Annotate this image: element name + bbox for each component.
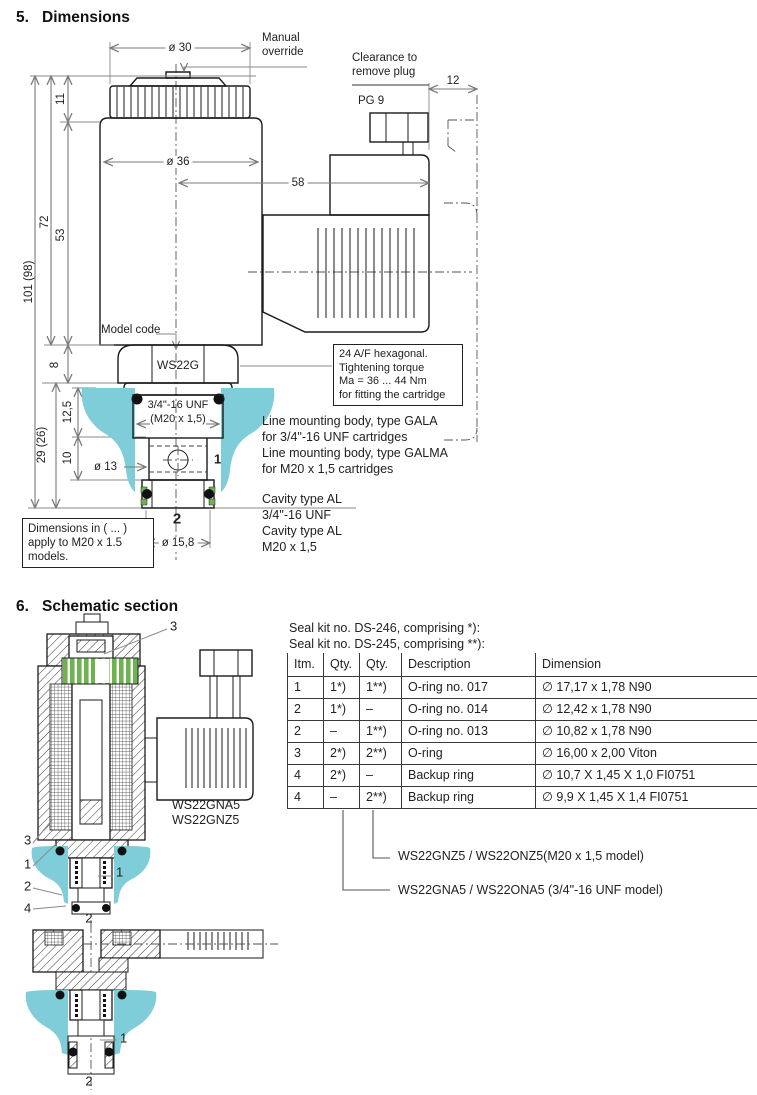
dim-12: 12 (444, 75, 463, 87)
dims-note-line: Dimensions in ( ... ) (28, 522, 148, 536)
dim-11: 11 (55, 93, 67, 105)
cell: 1*) (324, 677, 360, 699)
model-code-label: Model code (101, 324, 160, 336)
dim-58: 58 (289, 177, 308, 189)
seal-kit-line-1: Seal kit no. DS-246, comprising *): (289, 621, 480, 635)
dims-note-box: Dimensions in ( ... ) apply to M20 x 1.5… (22, 518, 154, 568)
cell: – (324, 787, 360, 809)
cell: – (360, 765, 402, 787)
seal-kit-line-2: Seal kit no. DS-245, comprising **): (289, 637, 485, 651)
section6-title: Schematic section (42, 598, 178, 616)
mount-note-line: for 3/4"-16 UNF cartridges (262, 430, 407, 444)
ws22g-label: WS22G (157, 358, 199, 372)
col-qty1: Qty. (324, 653, 360, 677)
datasheet-page: 5. Dimensions 6. Schematic section ø 30 … (0, 0, 757, 1095)
dim-125: 12,5 (62, 401, 74, 423)
cell: 1*) (324, 699, 360, 721)
dim-53: 53 (55, 229, 67, 242)
port2-label: 2 (173, 511, 181, 528)
callout-1: 1 (24, 857, 31, 872)
port1-label: 1 (214, 452, 221, 467)
cell: ∅ 12,42 x 1,78 N90 (536, 699, 757, 721)
callout-1-mid: 1 (116, 865, 123, 880)
dimension-drawing (28, 42, 477, 560)
hex-note-line: for fitting the cartridge (339, 389, 457, 403)
pg9-label: PG 9 (358, 95, 384, 107)
callout-2-bottom: 2 (85, 911, 92, 926)
cell: O-ring no. 013 (402, 721, 536, 743)
dim-dia30: ø 30 (165, 42, 194, 54)
cell: ∅ 9,9 X 1,45 X 1,4 FI0751 (536, 787, 757, 809)
hex-note-line: Ma = 36 ... 44 Nm (339, 375, 457, 389)
dims-note-line: apply to M20 x 1.5 (28, 536, 148, 550)
cavity-note-line: Cavity type AL (262, 524, 342, 538)
callout-2: 2 (24, 879, 31, 894)
mount-note-line: Line mounting body, type GALMA (262, 446, 448, 460)
manual-override-label-2: override (262, 46, 304, 58)
cell: Backup ring (402, 787, 536, 809)
clearance-label-1: Clearance to (352, 52, 417, 64)
cell: 3 (288, 743, 324, 765)
callout-4: 4 (24, 901, 31, 916)
cell: ∅ 16,00 x 2,00 Viton (536, 743, 757, 765)
cell: 2**) (360, 787, 402, 809)
callout-3-top: 3 (170, 619, 177, 634)
section6-number: 6. (16, 598, 29, 616)
cell: – (360, 699, 402, 721)
col-description: Description (402, 653, 536, 677)
dim-dia13: ø 13 (94, 461, 117, 473)
cell: O-ring no. 014 (402, 699, 536, 721)
model-label-1: WS22GNA5 (172, 798, 240, 812)
cell: 4 (288, 787, 324, 809)
cavity-note-line: Cavity type AL (262, 492, 342, 506)
table-leader-lines (343, 810, 390, 890)
schematic-upper (32, 614, 253, 928)
clearance-label-2: remove plug (352, 66, 415, 78)
table-header-row: Itm. Qty. Qty. Description Dimension (288, 653, 757, 677)
section5-number: 5. (16, 9, 29, 27)
cell: 2*) (324, 765, 360, 787)
mount-note-line: for M20 x 1,5 cartridges (262, 462, 393, 476)
cell: 2 (288, 721, 324, 743)
table-row: 42*)–Backup ring∅ 10,7 X 1,45 X 1,0 FI07… (288, 765, 757, 787)
section5-title: Dimensions (42, 9, 130, 27)
table-row: 2–1**)O-ring no. 013∅ 10,82 x 1,78 N90 (288, 721, 757, 743)
dims-note-line: models. (28, 550, 148, 564)
cavity-note-line: 3/4"-16 UNF (262, 508, 331, 522)
table-row: 21*)–O-ring no. 014∅ 12,42 x 1,78 N90 (288, 699, 757, 721)
cell: 2*) (324, 743, 360, 765)
cell: – (324, 721, 360, 743)
table-row: 4–2**)Backup ring∅ 9,9 X 1,45 X 1,4 FI07… (288, 787, 757, 809)
cell: O-ring (402, 743, 536, 765)
manual-override-label-1: Manual (262, 32, 300, 44)
cell: 1 (288, 677, 324, 699)
hex-note-line: 24 A/F hexagonal. (339, 348, 457, 362)
seal-kit-table: Itm. Qty. Qty. Description Dimension 11*… (287, 653, 757, 809)
mount-note-line: Line mounting body, type GALA (262, 414, 438, 428)
cell: 1**) (360, 721, 402, 743)
col-dimension: Dimension (536, 653, 757, 677)
hex-note-box: 24 A/F hexagonal. Tightening torque Ma =… (333, 344, 463, 406)
dim-dia36: ø 36 (163, 156, 192, 168)
model-line-m20: WS22GNZ5 / WS22ONZ5(M20 x 1,5 model) (398, 849, 644, 863)
cell: 4 (288, 765, 324, 787)
col-itm: Itm. (288, 653, 324, 677)
cell: 1**) (360, 677, 402, 699)
callout-2-lower: 2 (85, 1074, 92, 1089)
thread-label-2: (M20 x 1,5) (150, 413, 206, 425)
table-row: 11*)1**)O-ring no. 017∅ 17,17 x 1,78 N90 (288, 677, 757, 699)
cell: Backup ring (402, 765, 536, 787)
cell: ∅ 10,7 X 1,45 X 1,0 FI0751 (536, 765, 757, 787)
cell: 2**) (360, 743, 402, 765)
schematic-lower (26, 924, 278, 1090)
dim-8: 8 (49, 362, 61, 368)
model-line-unf: WS22GNA5 / WS22ONA5 (3/4"-16 UNF model) (398, 883, 663, 897)
cell: 2 (288, 699, 324, 721)
callout-3: 3 (24, 833, 31, 848)
hex-note-line: Tightening torque (339, 362, 457, 376)
cell: O-ring no. 017 (402, 677, 536, 699)
col-qty2: Qty. (360, 653, 402, 677)
callout-1-lower: 1 (120, 1031, 127, 1046)
dim-10: 10 (62, 452, 74, 465)
cell: ∅ 10,82 x 1,78 N90 (536, 721, 757, 743)
dim-dia158: ø 15,8 (159, 537, 198, 549)
cavity-note-line: M20 x 1,5 (262, 540, 317, 554)
thread-label-1: 3/4"-16 UNF (148, 399, 209, 411)
dim-29-26: 29 (26) (36, 427, 48, 463)
cell: ∅ 17,17 x 1,78 N90 (536, 677, 757, 699)
table-row: 32*)2**)O-ring∅ 16,00 x 2,00 Viton (288, 743, 757, 765)
dim-101-98: 101 (98) (23, 261, 35, 304)
model-label-2: WS22GNZ5 (172, 813, 239, 827)
dim-72: 72 (39, 216, 51, 229)
